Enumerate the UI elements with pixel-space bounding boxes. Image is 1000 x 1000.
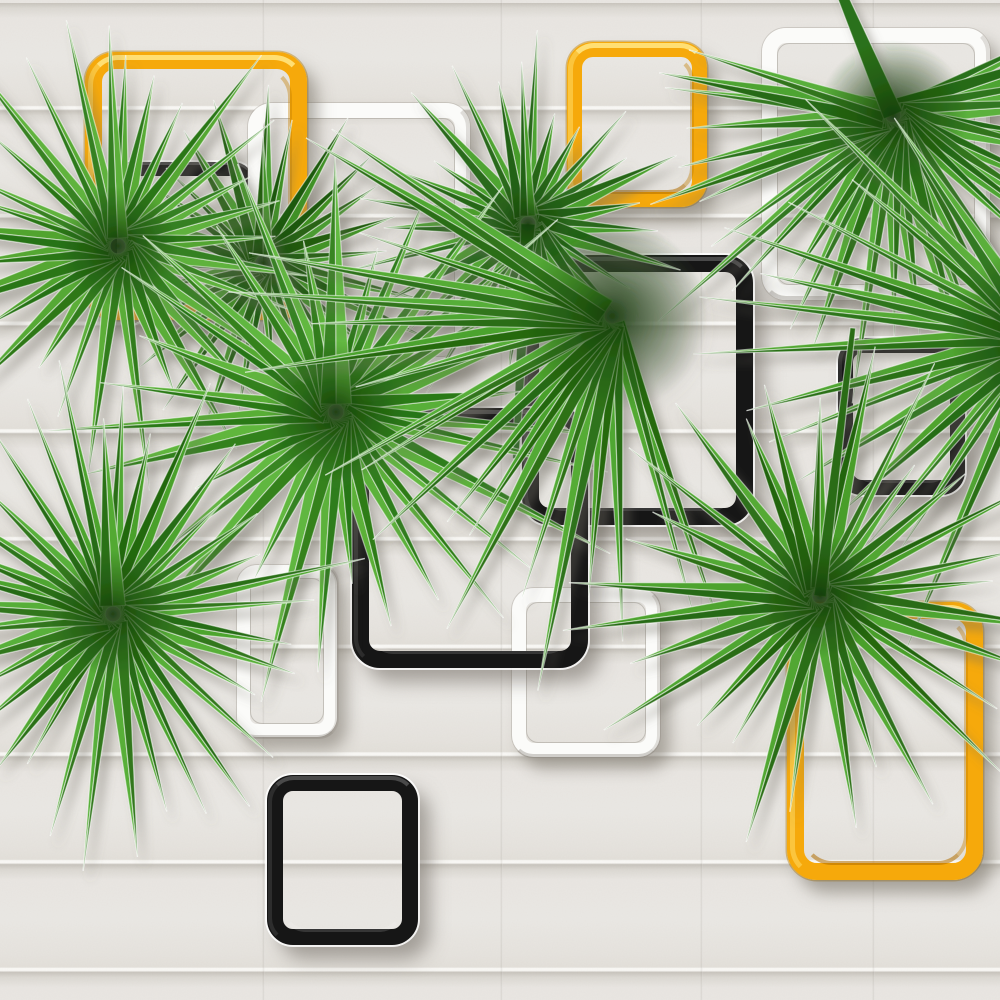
palm-fan-center [818,40,968,190]
palm-fan-center [516,220,708,412]
palm-fan-center [265,341,407,483]
palm-leaves-layer [0,0,1000,1000]
wallpaper-art [0,0,1000,1000]
palm-fans [0,0,1000,871]
palm-fan-center [758,534,882,658]
palm-fan-center [49,550,177,678]
palm-fan-center [58,186,178,306]
